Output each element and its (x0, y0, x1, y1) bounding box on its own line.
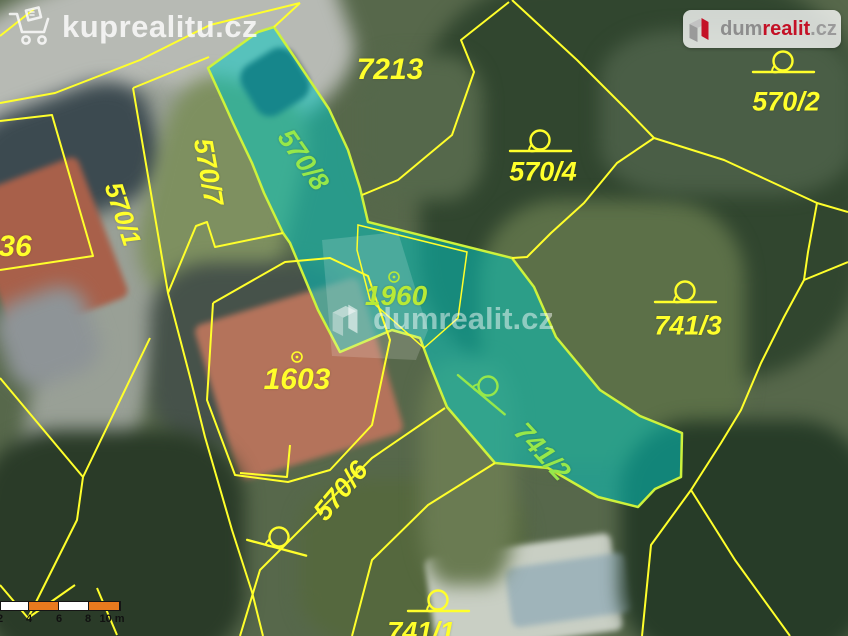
scale-bar-tick-label: 10 m (99, 613, 124, 625)
scale-bar-tick-label: 4 (26, 613, 32, 625)
scale-bar-segments (0, 601, 121, 611)
parcel-boundary-line (642, 203, 817, 636)
kuprealitu-logo[interactable]: kuprealitu.cz (8, 6, 258, 48)
parcel-boundary-line (0, 378, 83, 477)
survey-point-icon (292, 352, 302, 362)
parcel-boundary-line (804, 262, 848, 280)
parcel-number-label: 36 (0, 232, 32, 262)
scale-bar-tick-label: 2 (0, 613, 3, 625)
parcel-boundary-line (362, 2, 509, 195)
parcel-number-label: 741/3 (654, 313, 722, 340)
scale-bar-segment (59, 602, 89, 610)
parcel-number-label: 1603 (264, 365, 331, 395)
parcel-boundary-line (168, 222, 283, 293)
dumrealit-building-icon (687, 15, 714, 43)
parcel-number-label: 570/4 (509, 159, 577, 186)
kuprealitu-logo-text: kuprealitu.cz (62, 9, 258, 45)
scale-bar-segment (1, 602, 29, 610)
parcel-boundary-line (240, 408, 445, 636)
parcel-number-label: 570/2 (752, 89, 820, 116)
parcel-boundary-line (28, 338, 150, 618)
parcel-boundary-line (133, 57, 209, 88)
highlighted-parcel (208, 27, 682, 507)
parcel-number-label: 7213 (357, 55, 424, 85)
dumrealit-logo[interactable]: dumrealit.cz (683, 10, 841, 48)
dumrealit-logo-text: dumrealit.cz (720, 18, 837, 41)
scale-bar-tick-label: 8 (85, 613, 91, 625)
land-use-symbol-icon (655, 282, 716, 303)
parcel-boundary-line (240, 445, 290, 477)
parcel-boundary-line (512, 0, 654, 138)
parcel-boundary-line (654, 138, 848, 212)
land-use-symbol-icon (408, 591, 469, 612)
land-use-symbol-icon (510, 131, 571, 152)
scale-bar-segment (89, 602, 120, 610)
parcel-boundary-line (691, 490, 790, 636)
map-scale-bar: 246810 m (0, 601, 121, 611)
parcel-number-label: 1960 (365, 282, 427, 310)
parcel-number-label: 741/1 (387, 619, 455, 636)
cadastral-map[interactable]: 7213570/2570/4570/7570/8570/1361960741/3… (0, 0, 848, 636)
parcel-boundary-line (97, 588, 117, 635)
scale-bar-tick-label: 6 (56, 613, 62, 625)
shopping-cart-icon (8, 6, 54, 48)
land-use-symbol-icon (753, 52, 814, 73)
scale-bar-segment (29, 602, 59, 610)
